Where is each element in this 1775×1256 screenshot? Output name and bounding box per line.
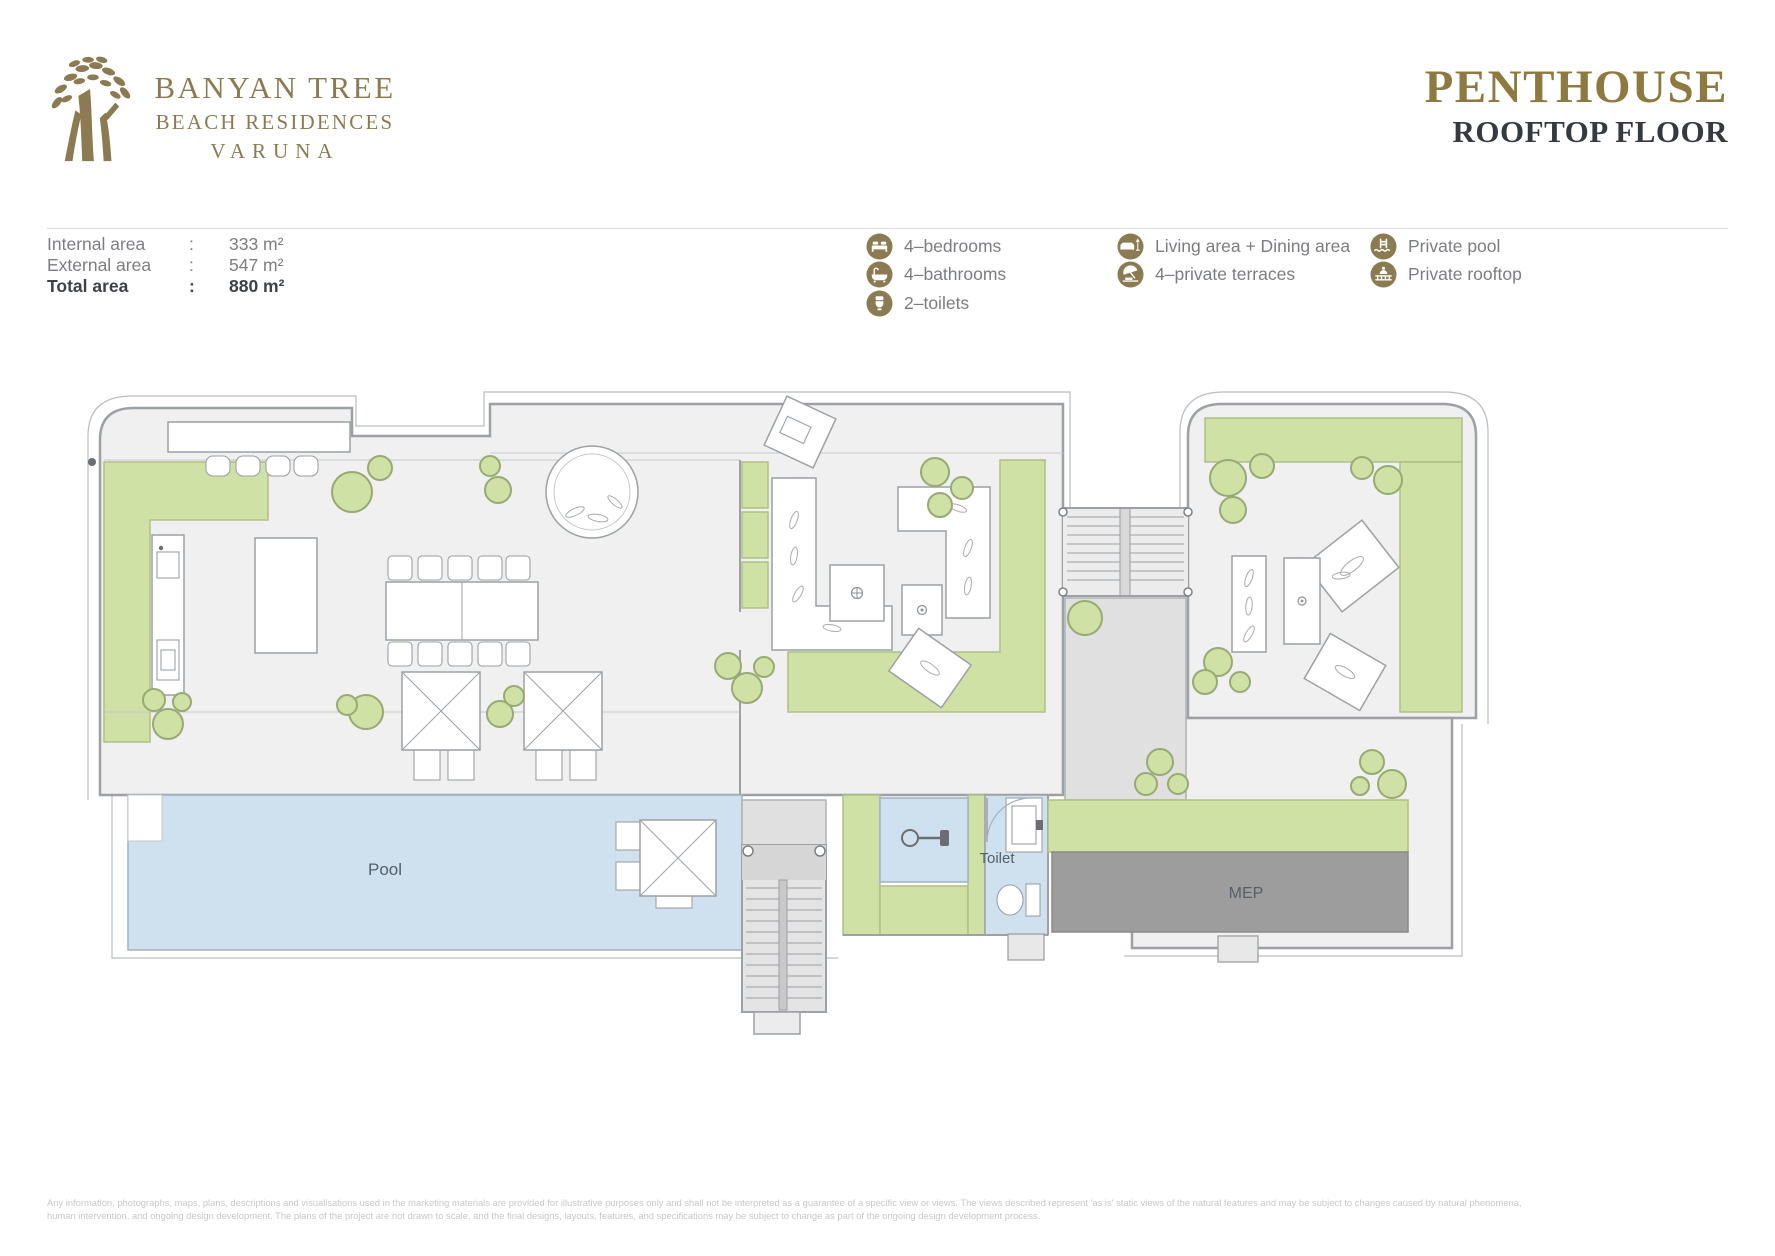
dining-set [386,556,538,666]
terrace-sofa [1232,556,1266,652]
terrace-table [1284,558,1320,644]
wc-fixture [997,884,1040,916]
kitchen-counter [152,535,184,695]
plunge-pocket [880,798,968,882]
bar-counter [168,422,350,452]
lower-staircase [742,800,826,1034]
round-feature [546,446,638,538]
toilet-zone: Toilet [843,795,1048,935]
kitchen-island [255,538,317,653]
disclaimer: Any information, photographs, maps, plan… [47,1196,1728,1222]
coffee-table-2 [902,585,942,635]
toilet-sink [1006,798,1043,852]
pool-label: Pool [368,860,402,879]
disclaimer-line-2: human intervention, and ongoing design d… [47,1209,1728,1222]
floor-plan: Pool [0,0,1775,1256]
wall-bolt [88,458,96,466]
coffee-table-1 [830,565,884,621]
disclaimer-line-1: Any information, photographs, maps, plan… [47,1196,1728,1209]
toilet-label: Toilet [979,850,1015,867]
pool-area: Pool [128,795,742,950]
mep-label: MEP [1229,885,1264,902]
